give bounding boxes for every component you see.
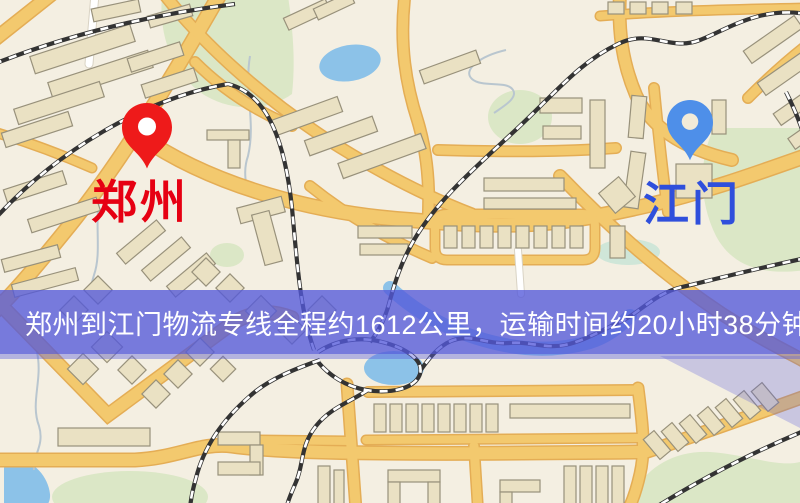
destination-city-label: 江门	[643, 179, 741, 230]
route-info-banner: 郑州到江门物流专线全程约1612公里，运输时间约20小时38分钟.	[0, 290, 800, 354]
route-info-text: 郑州到江门物流专线全程约1612公里，运输时间约20小时38分钟.	[25, 303, 800, 342]
map-canvas: 郑州 江门	[0, 0, 800, 503]
origin-city-label: 郑州	[91, 177, 189, 228]
destination-pin-hole	[682, 113, 699, 130]
origin-pin-hole	[138, 118, 156, 136]
map-screenshot: 郑州 江门 郑州到江门物流专线全程约1612公里，运输时间约20小时38分钟.	[0, 0, 800, 503]
